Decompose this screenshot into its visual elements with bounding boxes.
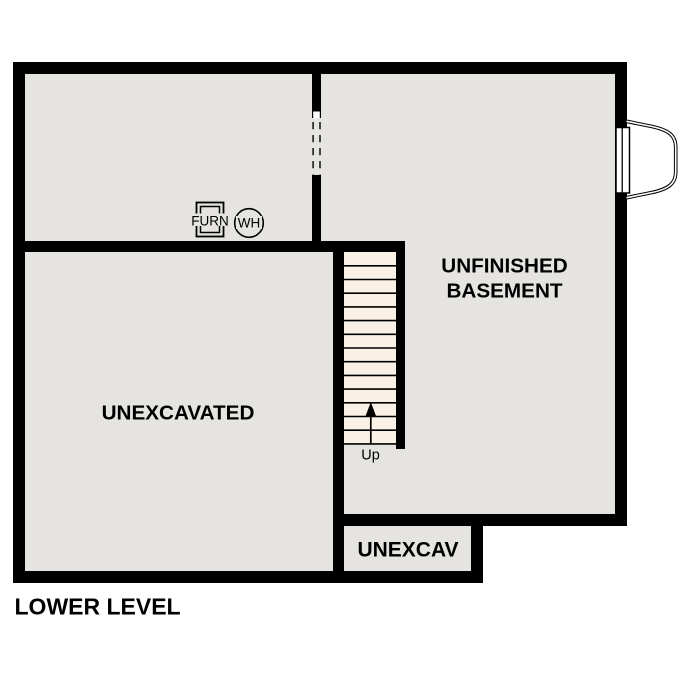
svg-text:FURN: FURN: [191, 214, 229, 229]
svg-text:BASEMENT: BASEMENT: [446, 280, 562, 303]
svg-text:Up: Up: [361, 448, 380, 464]
svg-text:WH: WH: [238, 216, 261, 231]
svg-text:UNEXCAVATED: UNEXCAVATED: [102, 402, 255, 425]
svg-text:UNEXCAV: UNEXCAV: [357, 539, 458, 562]
svg-text:LOWER LEVEL: LOWER LEVEL: [15, 594, 181, 620]
svg-text:UNFINISHED: UNFINISHED: [441, 255, 567, 278]
